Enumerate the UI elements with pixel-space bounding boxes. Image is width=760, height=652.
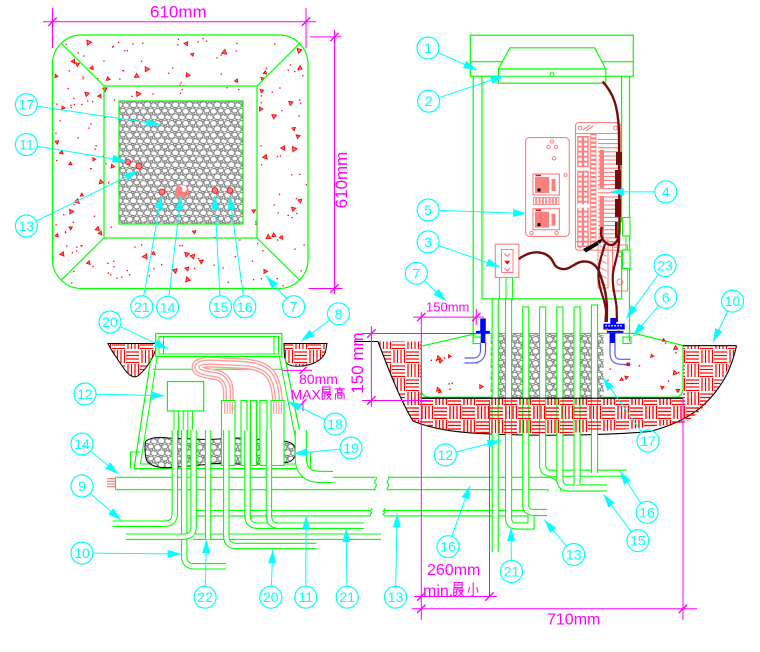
svg-text:12: 12 xyxy=(438,447,454,463)
svg-text:13: 13 xyxy=(388,589,404,605)
svg-text:17: 17 xyxy=(19,97,35,113)
svg-text:7: 7 xyxy=(413,265,421,281)
svg-text:5: 5 xyxy=(424,202,432,218)
svg-text:20: 20 xyxy=(263,589,279,605)
svg-text:20: 20 xyxy=(102,314,118,330)
svg-text:80mm: 80mm xyxy=(299,371,338,387)
svg-text:150mm: 150mm xyxy=(426,300,469,315)
svg-text:16: 16 xyxy=(237,299,253,315)
svg-text:8: 8 xyxy=(335,306,343,322)
svg-text:13: 13 xyxy=(19,218,35,234)
svg-text:21: 21 xyxy=(134,299,150,315)
svg-text:6: 6 xyxy=(662,289,670,305)
svg-text:15: 15 xyxy=(213,299,229,315)
svg-text:260mm: 260mm xyxy=(427,562,480,579)
svg-text:17: 17 xyxy=(640,433,656,449)
svg-text:150 mm: 150 mm xyxy=(348,332,367,393)
svg-text:14: 14 xyxy=(74,436,90,452)
svg-text:610mm: 610mm xyxy=(332,152,351,209)
svg-text:11: 11 xyxy=(299,589,314,605)
svg-text:21: 21 xyxy=(504,564,520,580)
svg-text:4: 4 xyxy=(662,184,670,200)
svg-text:2: 2 xyxy=(425,93,433,109)
svg-text:22: 22 xyxy=(197,589,213,605)
svg-text:610mm: 610mm xyxy=(150,3,207,22)
svg-text:19: 19 xyxy=(343,440,359,456)
svg-text:23: 23 xyxy=(657,258,673,274)
svg-text:7: 7 xyxy=(290,299,298,315)
svg-text:10: 10 xyxy=(725,293,741,309)
svg-text:11: 11 xyxy=(19,137,34,153)
svg-text:15: 15 xyxy=(630,533,646,549)
svg-text:21: 21 xyxy=(339,589,355,605)
svg-text:13: 13 xyxy=(566,547,582,563)
svg-text:16: 16 xyxy=(440,539,456,555)
svg-text:9: 9 xyxy=(78,478,86,494)
svg-text:10: 10 xyxy=(74,545,90,561)
svg-text:1: 1 xyxy=(424,40,432,56)
svg-text:12: 12 xyxy=(77,386,93,402)
svg-text:16: 16 xyxy=(639,504,655,520)
svg-text:3: 3 xyxy=(424,234,432,250)
svg-text:18: 18 xyxy=(327,416,343,432)
svg-text:min.: min. xyxy=(423,583,453,600)
svg-text:14: 14 xyxy=(160,299,176,315)
svg-text:710mm: 710mm xyxy=(547,612,600,629)
